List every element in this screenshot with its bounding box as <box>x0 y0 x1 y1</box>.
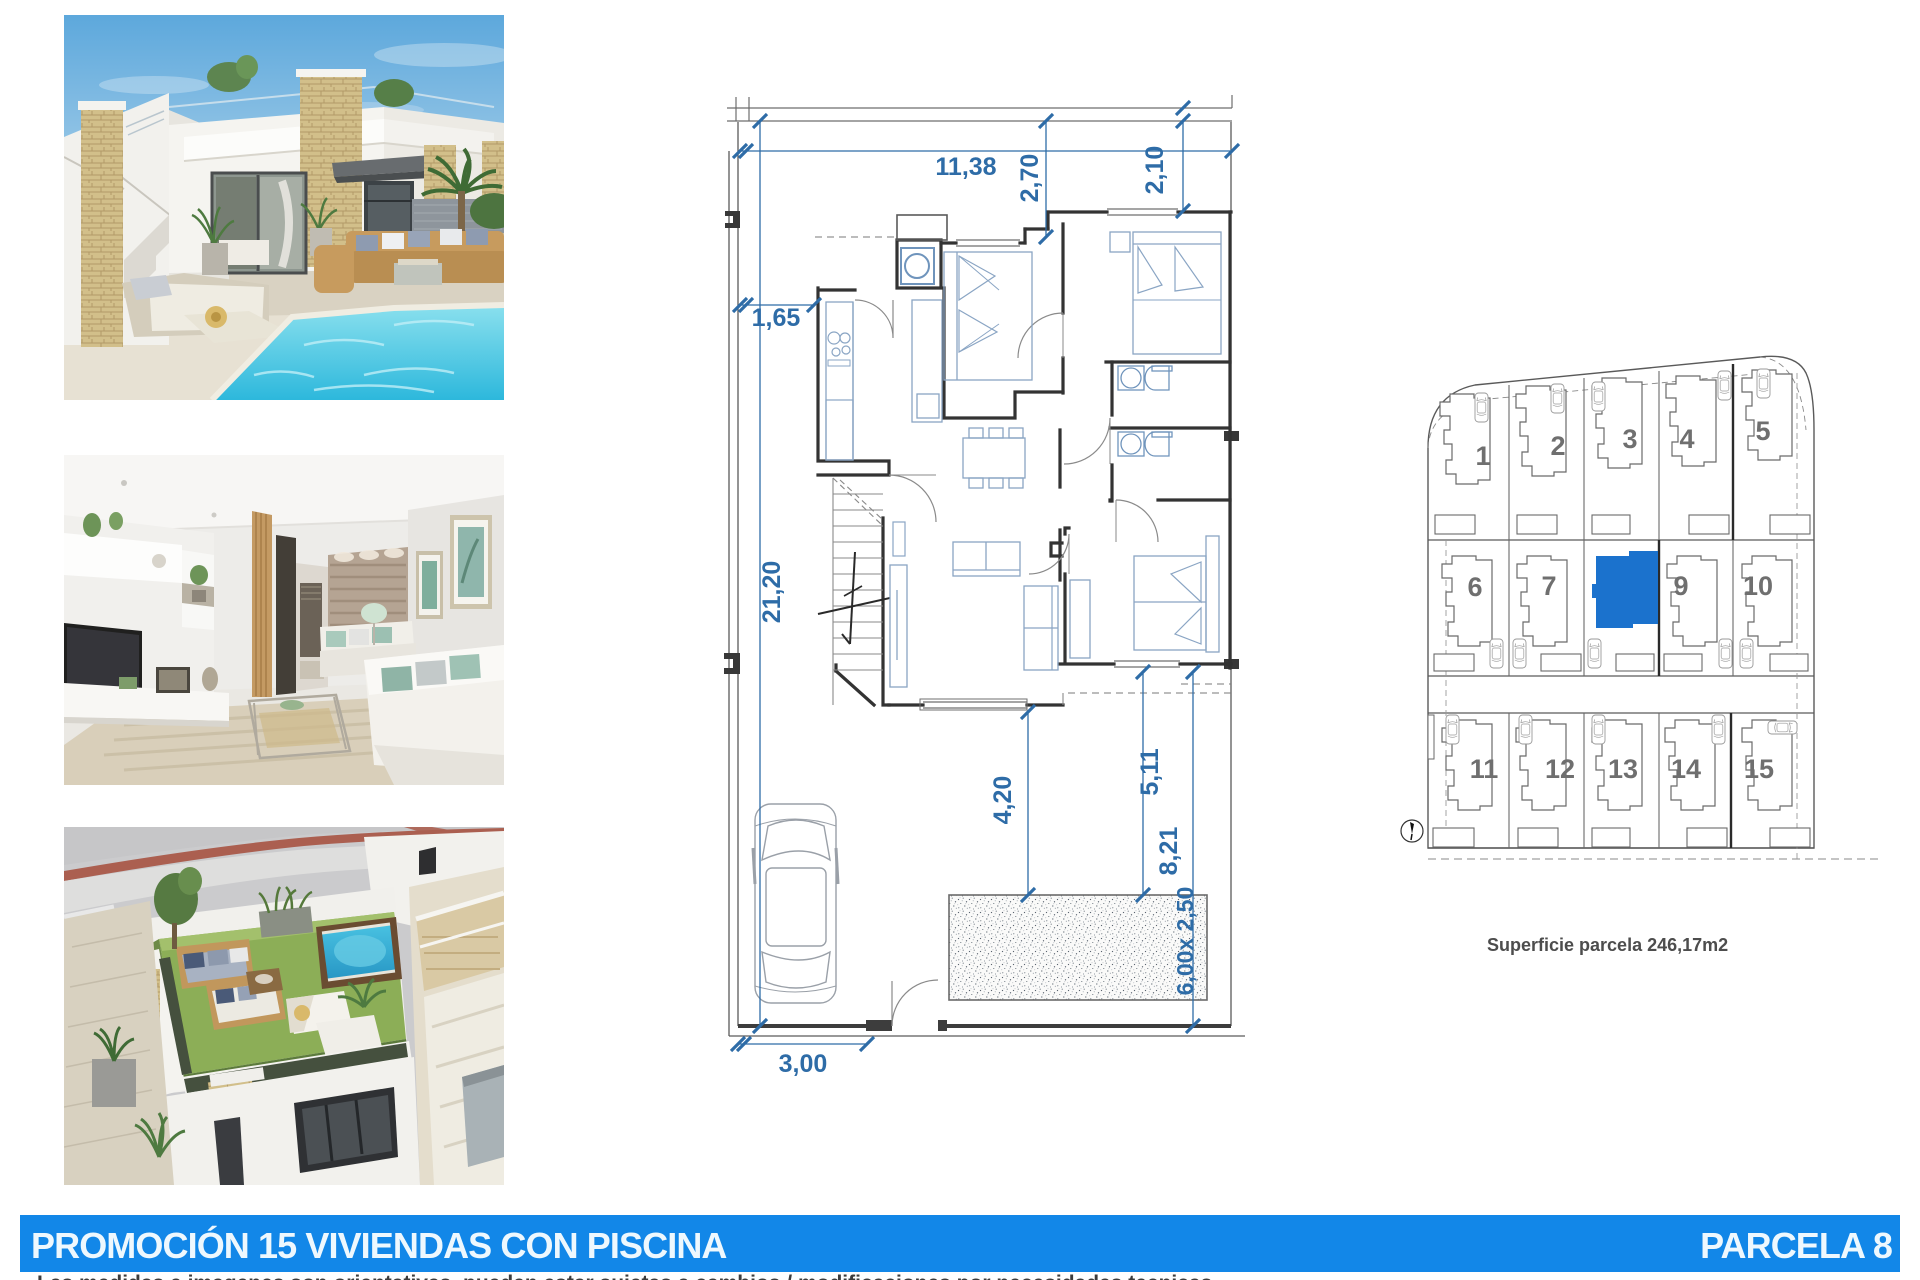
svg-text:3: 3 <box>1622 424 1637 454</box>
svg-text:10: 10 <box>1743 571 1773 601</box>
svg-text:Superficie parcela 246,17m2: Superficie parcela 246,17m2 <box>1487 935 1728 955</box>
svg-text:Las medidas e imagenes son ori: Las medidas e imagenes son orientativas,… <box>37 1272 1212 1280</box>
svg-text:1: 1 <box>1475 441 1490 471</box>
svg-text:PROMOCIÓN 15 VIVIENDAS CON PIS: PROMOCIÓN 15 VIVIENDAS CON PISCINA <box>31 1224 727 1266</box>
svg-text:PARCELA 8: PARCELA 8 <box>1700 1225 1892 1266</box>
svg-text:15: 15 <box>1744 754 1774 784</box>
svg-text:21,20: 21,20 <box>758 561 786 624</box>
svg-text:11: 11 <box>1470 754 1499 784</box>
svg-text:4,20: 4,20 <box>989 776 1017 825</box>
svg-text:6: 6 <box>1467 572 1482 602</box>
svg-text:2,10: 2,10 <box>1141 146 1169 195</box>
svg-text:2: 2 <box>1550 431 1565 461</box>
svg-text:4: 4 <box>1679 424 1694 454</box>
svg-text:5: 5 <box>1755 416 1770 446</box>
svg-text:1,65: 1,65 <box>752 304 801 332</box>
svg-text:6,00x 2,50: 6,00x 2,50 <box>1172 887 1198 996</box>
svg-text:3,00: 3,00 <box>779 1050 828 1078</box>
svg-text:14: 14 <box>1671 754 1701 784</box>
svg-text:12: 12 <box>1545 754 1575 784</box>
svg-text:5,11: 5,11 <box>1136 748 1164 795</box>
svg-text:11,38: 11,38 <box>935 153 996 181</box>
svg-text:2,70: 2,70 <box>1016 154 1044 203</box>
svg-text:13: 13 <box>1608 754 1638 784</box>
svg-text:9: 9 <box>1673 571 1688 601</box>
svg-text:8,21: 8,21 <box>1155 827 1183 876</box>
svg-text:7: 7 <box>1541 571 1556 601</box>
